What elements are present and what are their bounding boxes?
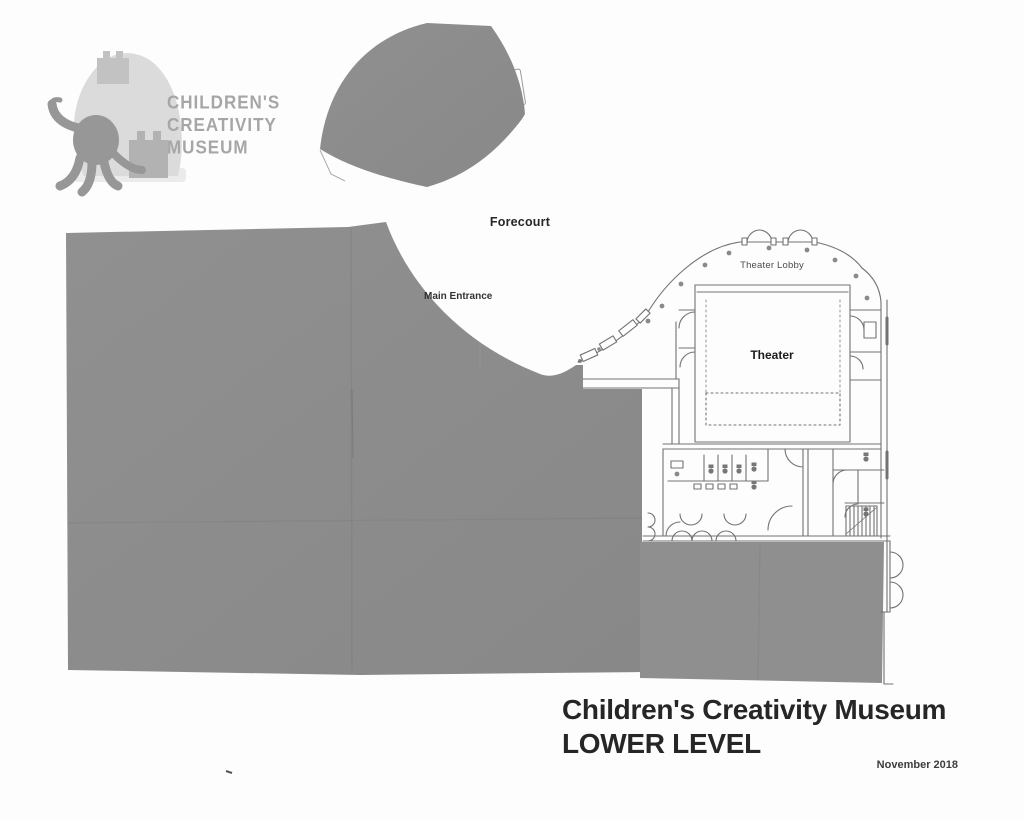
museum-logo-art: [52, 51, 186, 192]
floor-plan-page: CHILDREN'S CREATIVITY MUSEUM Forecourt M…: [0, 0, 1024, 819]
logo-wordmark: CHILDREN'S CREATIVITY MUSEUM: [167, 91, 280, 159]
pen-mark: [226, 771, 232, 773]
logo-wordmark-line1: CHILDREN'S: [167, 91, 280, 114]
redacted-region-lower-right: [640, 542, 884, 683]
main-entrance-vestibule: [578, 309, 650, 362]
logo-wordmark-line3: MUSEUM: [167, 136, 280, 159]
page-subtitle: LOWER LEVEL: [562, 728, 761, 760]
theater-lobby-arc: [645, 230, 881, 538]
redacted-region-main: [66, 222, 642, 675]
theater-lobby-label: Theater Lobby: [720, 260, 824, 271]
page-title: Children's Creativity Museum: [562, 694, 946, 726]
main-entrance-label: Main Entrance: [424, 291, 492, 302]
date-label: November 2018: [858, 759, 958, 771]
logo-wordmark-line2: CREATIVITY: [167, 114, 280, 137]
theater-room: [695, 285, 850, 442]
theater-label: Theater: [718, 348, 826, 362]
stairs-icon: [846, 506, 877, 536]
forecourt-label: Forecourt: [455, 215, 585, 229]
redacted-region-fan: [320, 23, 526, 187]
